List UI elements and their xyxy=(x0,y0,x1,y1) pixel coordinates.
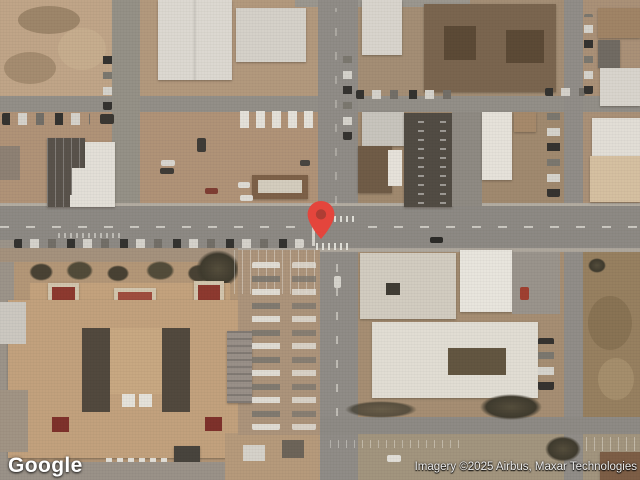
google-logo[interactable]: Google xyxy=(8,454,83,478)
marker-dot xyxy=(316,209,326,219)
imagery-attribution: Imagery ©2025 Airbus, Maxar Technologies xyxy=(415,461,637,473)
haze-overlay xyxy=(0,0,640,480)
marker-body xyxy=(308,201,335,239)
map-marker-icon[interactable] xyxy=(307,201,335,239)
map-canvas[interactable]: Google Imagery ©2025 Airbus, Maxar Techn… xyxy=(0,0,640,480)
